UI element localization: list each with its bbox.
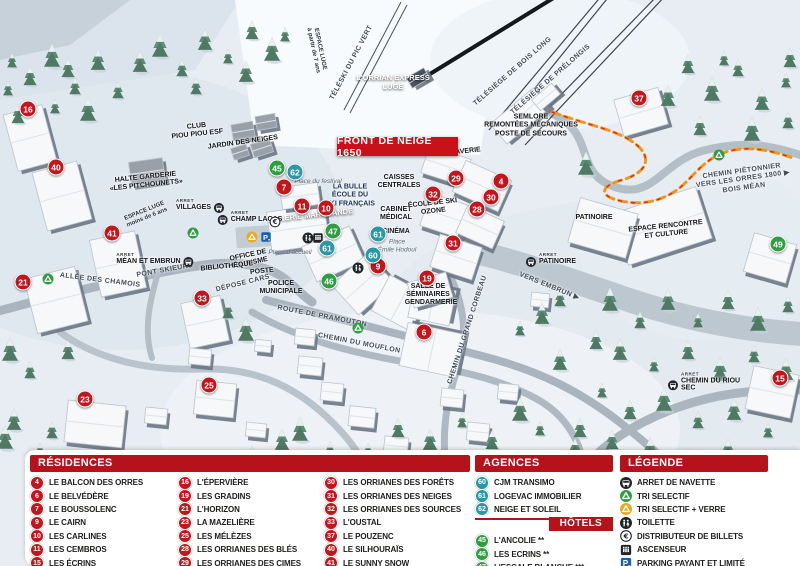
euro-icon: € — [620, 530, 632, 542]
map-label-orrian-express: L'ORRIAN EXPRESSLUGE — [356, 74, 429, 92]
agence-legend-item-label: CJM TRANSIMO — [494, 478, 555, 487]
hotel-legend-item-badge: 47 — [475, 561, 489, 566]
svg-text:P: P — [623, 559, 629, 566]
hotel-legend-item-label: LES ECRINS ** — [494, 550, 549, 559]
legende-item: €DISTRIBUTEUR DE BILLETS — [620, 530, 780, 543]
map-marker-30-14: 30 — [483, 189, 500, 206]
hotel-legend-item-badge: 45 — [475, 534, 489, 548]
residence-legend-item: 25LES MÉLÈZES — [178, 530, 324, 543]
map-marker-4-13: 4 — [493, 173, 510, 190]
map-marker-31-16: 31 — [445, 235, 462, 252]
legende-item: ASCENSEUR — [620, 543, 780, 556]
elevator-icon — [620, 544, 632, 556]
residence-legend-item: 30LES ORRIANES DES FORÊTS — [324, 476, 470, 489]
agences-header: AGENCES IMMOBILIÈRES — [475, 455, 613, 472]
recycle-green-icon — [714, 150, 725, 161]
map-marker-62-25: 62 — [287, 164, 304, 181]
bus-stop-text: ARRETPATINOIRE — [539, 253, 576, 265]
residence-label: LES ÉCRINS — [49, 559, 96, 566]
residence-label: LES GRADINS — [197, 492, 251, 501]
map-marker-32-12: 32 — [425, 186, 442, 203]
map-marker-7-7: 7 — [276, 179, 293, 196]
residence-label: LE SILHOURAÏS — [343, 545, 403, 554]
residence-legend-item: 28LES ORRIANES DES BLÉS — [178, 543, 324, 556]
residence-legend-item: 15LES ÉCRINS — [30, 556, 178, 566]
bus-stop-patinoire: ARRETPATINOIRE — [526, 253, 576, 265]
map-marker-6-18: 6 — [416, 324, 433, 341]
hotels-header: HÔTELS — [549, 517, 613, 531]
residence-number-badge: 28 — [178, 543, 192, 557]
map-marker-47-22: 47 — [325, 223, 342, 240]
legende-item: TOILETTE — [620, 516, 780, 529]
residence-legend-item: 33L'OUSTAL — [324, 516, 470, 529]
residence-legend-item: 19LES GRADINS — [178, 489, 324, 502]
map-marker-49-24: 49 — [770, 236, 787, 253]
map-label-caisses-centrales: CAISSESCENTRALES — [378, 174, 421, 191]
residence-label: LES ORRIANES DES CIMES — [197, 559, 301, 566]
residence-label: LES CEMBROS — [49, 545, 107, 554]
residence-legend-item: 29LES ORRIANES DES CIMES — [178, 556, 324, 566]
residence-legend-item: 9LE CAIRN — [30, 516, 178, 529]
legende-item: ARRET DE NAVETTE — [620, 476, 780, 489]
legende-item-label: ASCENSEUR — [637, 545, 686, 554]
residence-legend-item: 16L'ÉPERVIÈRE — [178, 476, 324, 489]
agence-legend-item: 61LOGEVAC IMMOBILIER — [475, 489, 613, 502]
svg-text:€: € — [622, 532, 628, 541]
recycle-green-icon — [43, 274, 54, 285]
hotel-legend-item-label: L'ANCOLIE ** — [494, 536, 544, 545]
residence-number-badge: 23 — [178, 516, 192, 530]
residence-legend-item: 40LE SILHOURAÏS — [324, 543, 470, 556]
bus-icon — [218, 212, 228, 222]
residence-legend-item: 21L'HORIZON — [178, 503, 324, 516]
euro-icon: € — [270, 217, 281, 228]
legend-section-agences: AGENCES IMMOBILIÈRES 60CJM TRANSIMO61LOG… — [475, 455, 613, 566]
bus-icon — [184, 254, 194, 264]
legende-item: PPARKING PAYANT ET LIMITÉ — [620, 556, 780, 566]
hotel-legend-item: 45L'ANCOLIE ** — [475, 534, 613, 547]
toilet-icon — [620, 517, 632, 529]
residence-number-badge: 31 — [324, 489, 338, 503]
map-label-patinoire: PATINOIRE — [575, 214, 612, 222]
resort-map-page: FRONT DE NEIGE 1650 RÉSIDENCES 4LE BALCO… — [0, 0, 800, 566]
residence-number-badge: 25 — [178, 529, 192, 543]
residence-label: L'HORIZON — [197, 505, 240, 514]
residence-legend-item: 37LE POUZENC — [324, 530, 470, 543]
legende-item-label: PARKING PAYANT ET LIMITÉ — [637, 559, 745, 566]
hotel-legend-item: 47L'ESCALE BLANCHE *** — [475, 561, 613, 566]
map-label-place-du-festival: Place du festival — [294, 178, 341, 186]
residence-number-badge: 40 — [324, 543, 338, 557]
front-de-neige-banner: FRONT DE NEIGE 1650 — [337, 137, 458, 156]
legende-item: TRI SELECTIF + VERRE — [620, 503, 780, 516]
map-marker-40-1: 40 — [48, 159, 65, 176]
recycle-green-icon — [620, 490, 632, 502]
toilet-icon — [353, 263, 364, 274]
residence-label: LE POUZENC — [343, 532, 394, 541]
residence-number-badge: 21 — [178, 502, 192, 516]
agence-legend-item: 62NEIGE ET SOLEIL — [475, 503, 613, 516]
residence-number-badge: 11 — [30, 543, 44, 557]
map-marker-46-23: 46 — [321, 273, 338, 290]
map-marker-37-19: 37 — [631, 90, 648, 107]
recycle-green-icon — [353, 323, 364, 334]
legende-header: LÉGENDE — [620, 455, 768, 472]
map-label-police-municipale: POLICEMUNICIPALE — [259, 280, 302, 297]
residence-label: LE BOUSSOLENC — [49, 505, 117, 514]
residence-label: L'OUSTAL — [343, 518, 381, 527]
bus-icon — [526, 254, 536, 264]
residence-label: LE BELVÉDÈRE — [49, 492, 109, 501]
residence-label: LE CAIRN — [49, 518, 86, 527]
bus-stop-text: ARRETMÉAN ET EMBRUN — [116, 253, 180, 265]
legende-list: ARRET DE NAVETTETRI SELECTIFTRI SELECTIF… — [620, 476, 780, 566]
legende-item-label: DISTRIBUTEUR DE BILLETS — [637, 532, 743, 541]
map-marker-45-21: 45 — [269, 160, 286, 177]
residence-label: LES ORRIANES DES BLÉS — [197, 545, 297, 554]
residence-label: L'ÉPERVIÈRE — [197, 478, 248, 487]
residence-legend-item: 23LA MAZELIÈRE — [178, 516, 324, 529]
residences-list: 4LE BALCON DES ORRES6LE BELVÉDÈRE7LE BOU… — [30, 476, 470, 566]
residence-legend-item: 10LES CARLINES — [30, 530, 178, 543]
residence-legend-item: 41LE SUNNY SNOW — [324, 556, 470, 566]
recycle-yellow-icon — [247, 232, 258, 243]
svg-text:P: P — [263, 233, 268, 242]
residence-number-badge: 30 — [324, 476, 338, 490]
residence-label: LES ORRIANES DES SOURCES — [343, 505, 461, 514]
residence-number-badge: 15 — [30, 556, 44, 566]
legende-item-label: ARRET DE NAVETTE — [637, 478, 715, 487]
residence-legend-item: 7LE BOUSSOLENC — [30, 503, 178, 516]
residence-label: LE SUNNY SNOW — [343, 559, 409, 566]
residence-legend-item: 6LE BELVÉDÈRE — [30, 489, 178, 502]
bus-stop-villages: ARRETVILLAGES — [176, 199, 224, 211]
map-marker-33-4: 33 — [194, 290, 211, 307]
map-marker-21-3: 21 — [15, 274, 32, 291]
map-marker-61-26: 61 — [319, 240, 336, 257]
agence-legend-item-label: LOGEVAC IMMOBILIER — [494, 492, 581, 501]
residence-number-badge: 16 — [178, 476, 192, 490]
legend-panel: RÉSIDENCES 4LE BALCON DES ORRES6LE BELVÉ… — [25, 450, 800, 566]
residence-number-badge: 37 — [324, 529, 338, 543]
map-marker-29-11: 29 — [448, 170, 465, 187]
residence-number-badge: 29 — [178, 556, 192, 566]
map-marker-61-27: 61 — [370, 226, 387, 243]
residence-number-badge: 41 — [324, 556, 338, 566]
residence-label: LES CARLINES — [49, 532, 106, 541]
agence-legend-item-label: NEIGE ET SOLEIL — [494, 505, 561, 514]
residence-number-badge: 7 — [30, 502, 44, 516]
legende-item-label: TOILETTE — [637, 518, 675, 527]
bus-stop-m-an-et-embrun: ARRETMÉAN ET EMBRUN — [116, 253, 193, 265]
map-label-gendarmerie: GENDARMERIE — [405, 299, 458, 307]
legende-item: TRI SELECTIF — [620, 489, 780, 502]
residence-legend-item: 4LE BALCON DES ORRES — [30, 476, 178, 489]
bus-stop-chemin-du-riou-sec: ARRETCHEMIN DU RIOU SEC — [668, 372, 756, 391]
agences-list: 60CJM TRANSIMO61LOGEVAC IMMOBILIER62NEIG… — [475, 476, 613, 516]
recycle-green-icon — [188, 228, 199, 239]
map-marker-41-2: 41 — [104, 225, 121, 242]
legende-item-label: TRI SELECTIF — [637, 492, 690, 501]
recycle-yellow-icon — [620, 503, 632, 515]
residence-legend-item: 32LES ORRIANES DES SOURCES — [324, 503, 470, 516]
residence-number-badge: 9 — [30, 516, 44, 530]
bus-icon — [620, 477, 632, 489]
residence-label: LA MAZELIÈRE — [197, 518, 255, 527]
agence-legend-item-badge: 61 — [475, 489, 489, 503]
hotels-list: 45L'ANCOLIE **46LES ECRINS **47L'ESCALE … — [475, 534, 613, 566]
residence-label: LES ORRIANES DES NEIGES — [343, 492, 452, 501]
map-marker-16-0: 16 — [20, 101, 37, 118]
hotel-legend-item-badge: 46 — [475, 547, 489, 561]
parking-icon: P — [620, 557, 632, 566]
bus-stop-text: ARRETCHEMIN DU RIOU SEC — [681, 372, 756, 391]
legend-section-legende: LÉGENDE ARRET DE NAVETTETRI SELECTIFTRI … — [620, 455, 780, 566]
bus-icon — [214, 200, 224, 210]
map-label-semlore: SEMLOREREMONTÉES MÉCANIQUESPOSTE DE SECO… — [484, 114, 578, 139]
map-marker-11-8: 11 — [294, 198, 311, 215]
residences-header: RÉSIDENCES — [30, 455, 470, 472]
map-marker-60-28: 60 — [365, 247, 382, 264]
svg-text:€: € — [272, 218, 278, 226]
map-marker-28-15: 28 — [469, 201, 486, 218]
hotels-divider: HÔTELS — [475, 518, 613, 534]
map-marker-23-5: 23 — [77, 391, 94, 408]
map-label-place-accueil: Place d'accueil — [268, 249, 311, 257]
residence-label: LES MÉLÈZES — [197, 532, 251, 541]
residence-number-badge: 19 — [178, 489, 192, 503]
residence-legend-item: 31LES ORRIANES DES NEIGES — [324, 489, 470, 502]
bus-stop-text: ARRETVILLAGES — [176, 199, 211, 211]
agence-legend-item-badge: 60 — [475, 476, 489, 490]
map-label-place-emile-hodoul: PlaceÉmile Hodoul — [378, 238, 417, 253]
map-marker-10-9: 10 — [318, 200, 335, 217]
bus-icon — [668, 377, 678, 387]
hotel-legend-item: 46LES ECRINS ** — [475, 548, 613, 561]
parking-icon: P — [261, 232, 272, 243]
residence-number-badge: 10 — [30, 529, 44, 543]
map-marker-19-17: 19 — [419, 270, 436, 287]
map-label-cabinet-medical: CABINETMÉDICAL — [380, 206, 412, 223]
residence-label: LE BALCON DES ORRES — [49, 478, 143, 487]
map-marker-25-6: 25 — [201, 377, 218, 394]
agence-legend-item-badge: 62 — [475, 502, 489, 516]
residence-number-badge: 4 — [30, 476, 44, 490]
residence-number-badge: 6 — [30, 489, 44, 503]
legend-section-residences: RÉSIDENCES 4LE BALCON DES ORRES6LE BELVÉ… — [30, 455, 470, 566]
map-marker-15-20: 15 — [772, 370, 789, 387]
residence-label: LES ORRIANES DES FORÊTS — [343, 478, 454, 487]
residence-number-badge: 32 — [324, 502, 338, 516]
residence-legend-item: 11LES CEMBROS — [30, 543, 178, 556]
legende-item-label: TRI SELECTIF + VERRE — [637, 505, 725, 514]
residence-number-badge: 33 — [324, 516, 338, 530]
